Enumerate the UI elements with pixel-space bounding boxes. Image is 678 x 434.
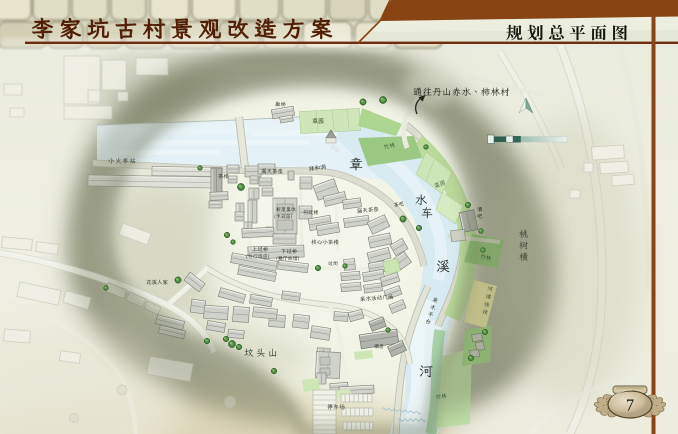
svg-text:7: 7 [626, 396, 634, 415]
